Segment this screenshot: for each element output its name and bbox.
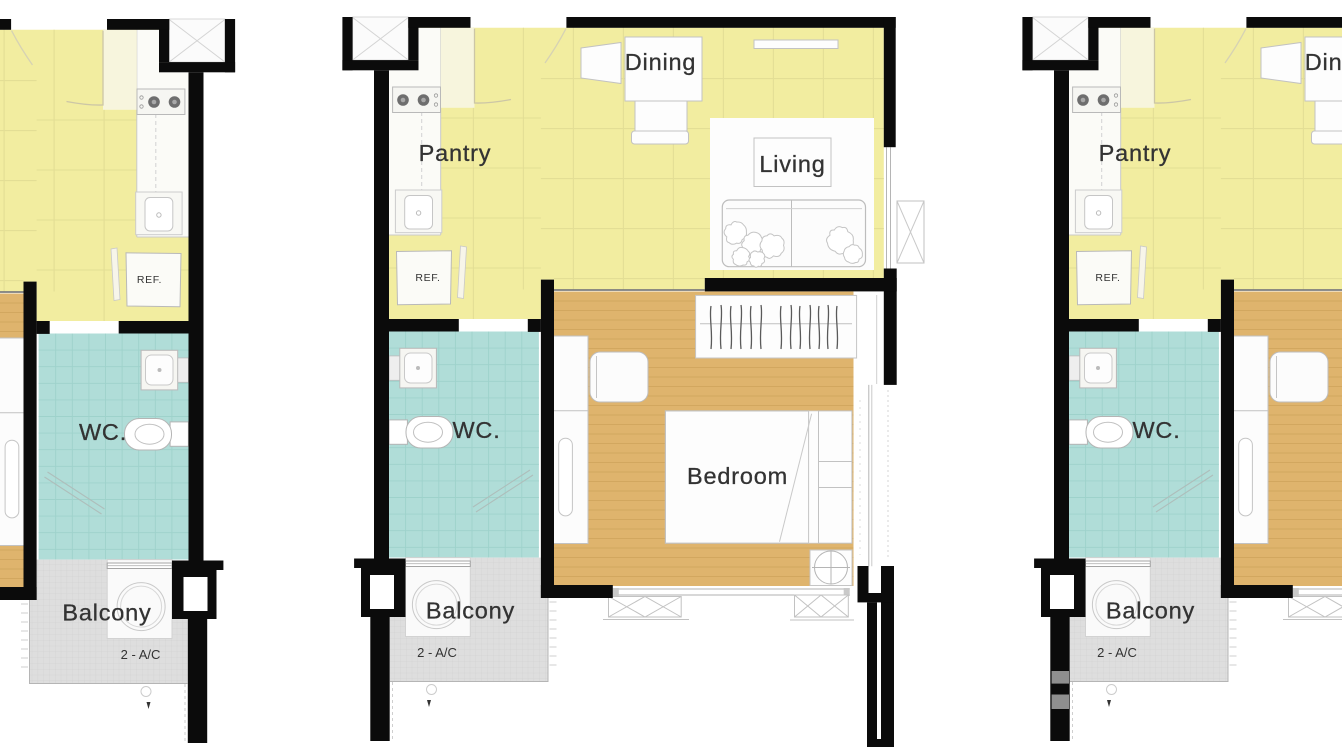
svg-text:WC.: WC.: [79, 419, 127, 445]
svg-text:Pantry: Pantry: [419, 140, 492, 166]
svg-text:Dining: Dining: [625, 49, 696, 75]
svg-text:2 - A/C: 2 - A/C: [417, 645, 457, 660]
svg-text:REF.: REF.: [137, 274, 162, 286]
svg-text:Balcony: Balcony: [1106, 598, 1195, 624]
svg-text:Balcony: Balcony: [62, 600, 151, 626]
svg-text:Pantry: Pantry: [1099, 140, 1172, 166]
svg-text:2 - A/C: 2 - A/C: [1097, 645, 1137, 660]
svg-text:Living: Living: [759, 151, 825, 177]
svg-text:Balcony: Balcony: [426, 598, 515, 624]
svg-text:2 - A/C: 2 - A/C: [121, 647, 161, 662]
svg-text:REF.: REF.: [1095, 272, 1120, 284]
svg-text:Bedroom: Bedroom: [687, 463, 788, 489]
svg-text:WC.: WC.: [452, 417, 500, 443]
svg-text:REF.: REF.: [415, 272, 440, 284]
svg-text:WC.: WC.: [1132, 417, 1180, 443]
svg-text:Dining: Dining: [1305, 49, 1342, 75]
